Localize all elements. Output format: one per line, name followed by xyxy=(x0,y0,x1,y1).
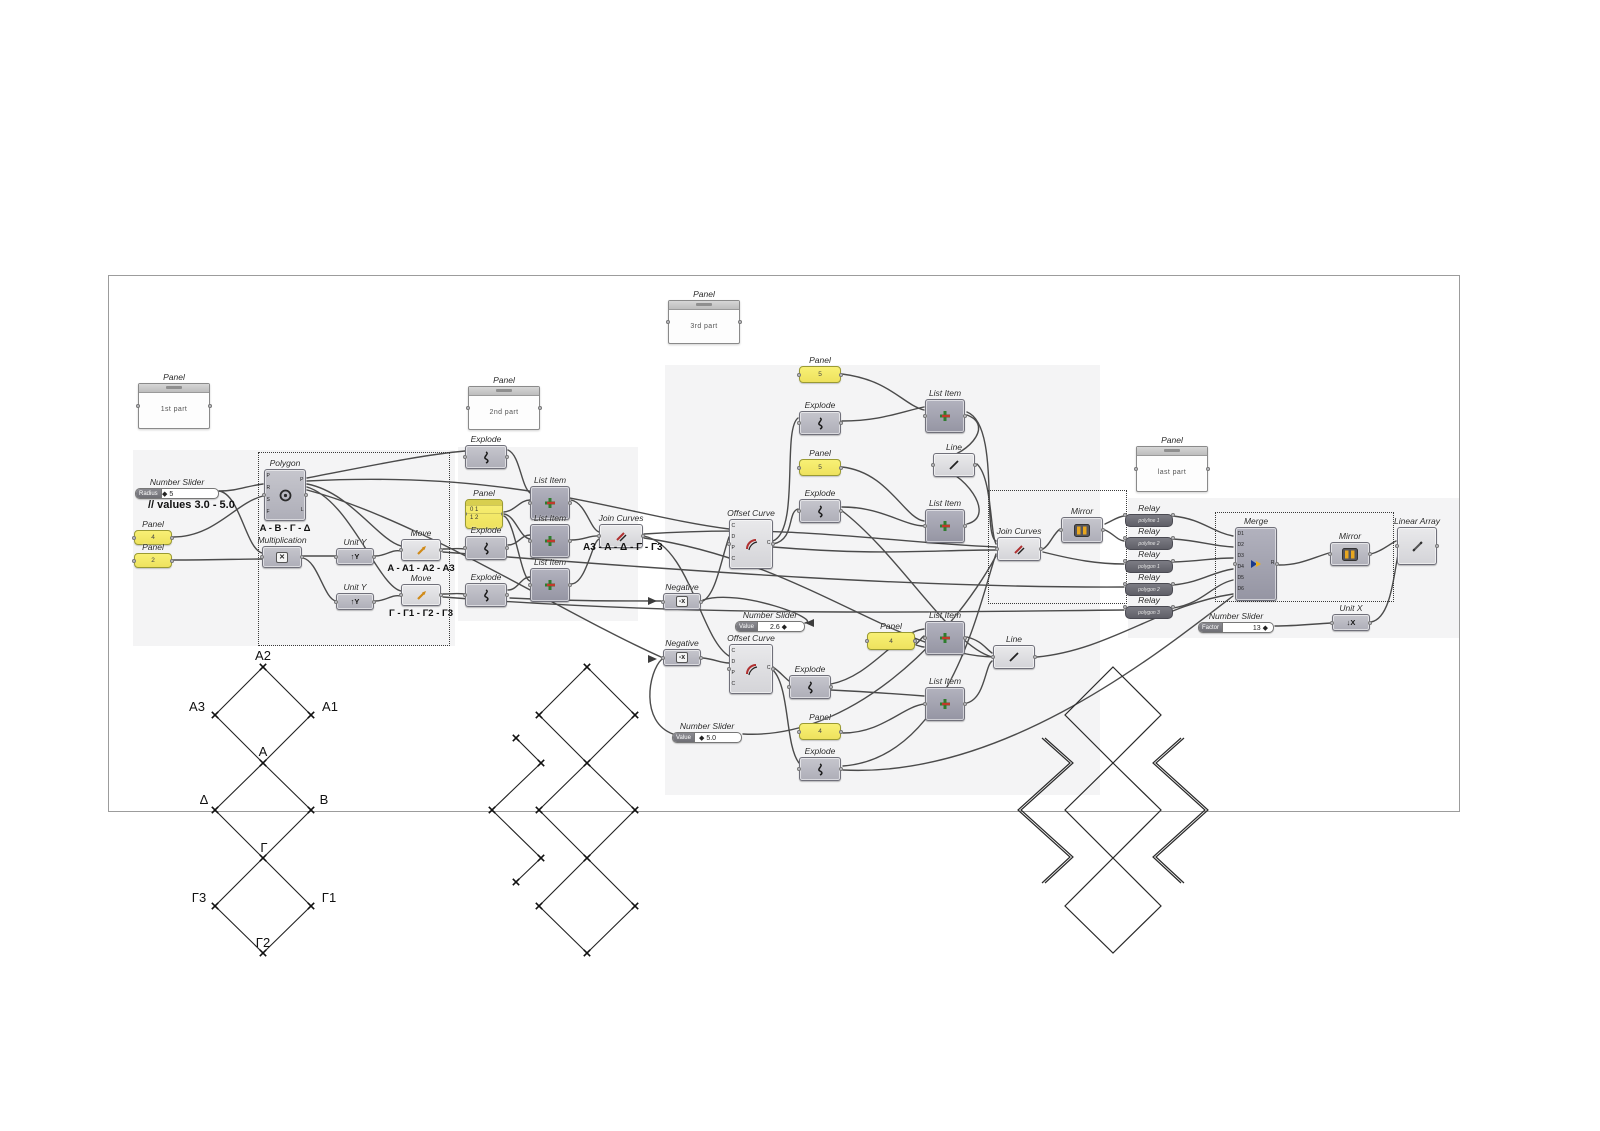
node-body xyxy=(925,509,965,543)
list-item-icon xyxy=(938,631,952,645)
number-slider-offset-top[interactable]: Number Slider Value 2.6 ◆ xyxy=(735,610,805,632)
node-label: Unit Y xyxy=(344,582,367,592)
slider-track: Value ◆ 5.0 xyxy=(672,732,742,743)
slider-grip[interactable]: Value xyxy=(736,622,758,631)
node-label: List Item xyxy=(534,557,566,567)
yellow-panel-body: 5 xyxy=(799,366,841,383)
merge-icon xyxy=(1249,557,1263,571)
join-annotation: A3 - A - Δ - Γ - Γ3 xyxy=(583,542,663,553)
unit-y-node-2[interactable]: Unit Y ↑Y xyxy=(337,582,373,610)
polygon-node[interactable]: Polygon P R S F P L A - B - Γ - Δ xyxy=(265,458,305,534)
explode-node-m2[interactable]: Explode xyxy=(800,488,840,523)
line-node-2[interactable]: Line xyxy=(994,634,1034,669)
join-curves-node-2[interactable]: Join Curves xyxy=(998,526,1040,561)
panel-label: Panel xyxy=(493,375,515,385)
node-label: Multiplication xyxy=(257,535,306,545)
list-item-node-3[interactable]: List Item xyxy=(531,557,569,602)
yellow-list-panel[interactable]: Panel 0 1 1 2 xyxy=(466,488,502,529)
linear-array-node[interactable]: Linear Array xyxy=(1398,516,1436,565)
offset-curve-node-1[interactable]: Offset Curve C D P C C xyxy=(730,508,772,569)
mirror-icon xyxy=(1342,548,1358,561)
number-slider-offset-bottom[interactable]: Number Slider Value ◆ 5.0 xyxy=(672,721,742,743)
node-body xyxy=(1397,527,1437,565)
panel-body: last part xyxy=(1136,446,1208,492)
explode-node-2[interactable]: Explode xyxy=(466,525,506,560)
node-body xyxy=(933,453,975,477)
node-label: Mirror xyxy=(1071,506,1093,516)
negative-node-1[interactable]: Negative -x xyxy=(664,582,700,610)
relay-body: polygon 3 xyxy=(1125,606,1173,619)
relay-node-5[interactable]: Relay polygon 3 xyxy=(1126,595,1172,619)
node-label: Explode xyxy=(471,525,502,535)
panel-label: Panel xyxy=(693,289,715,299)
node-body: P R S F P L xyxy=(264,469,306,521)
relay-node-1[interactable]: Relay polyline 1 xyxy=(1126,503,1172,527)
number-slider-radius[interactable]: Number Slider Radius ◆ 5 xyxy=(135,477,219,499)
line-node-1[interactable]: Line xyxy=(934,442,974,477)
node-label: Explode xyxy=(805,400,836,410)
node-label: Explode xyxy=(471,434,502,444)
node-label: List Item xyxy=(929,676,961,686)
slider-value: 2.6 ◆ xyxy=(770,623,787,631)
node-label: Explode xyxy=(805,488,836,498)
node-body xyxy=(401,584,441,606)
move-icon xyxy=(415,589,428,602)
slider-track: Factor 13 ◆ xyxy=(1198,622,1274,633)
panel-text: 3rd part xyxy=(669,310,739,343)
node-body: ↓X xyxy=(1332,614,1370,631)
panel-second[interactable]: Panel 2nd part xyxy=(468,375,540,430)
negative-icon: -x xyxy=(676,652,688,663)
node-body: ↑Y xyxy=(336,593,374,610)
explode-icon xyxy=(480,450,492,464)
unit-y-icon: ↑Y xyxy=(351,597,360,606)
port-in[interactable]: D4 xyxy=(1238,565,1244,570)
unit-y-node-1[interactable]: Unit Y ↑Y xyxy=(337,537,373,565)
node-body xyxy=(799,499,841,523)
node-body xyxy=(799,757,841,781)
node-label: List Item xyxy=(929,498,961,508)
node-body xyxy=(799,411,841,435)
node-label: Negative xyxy=(665,582,699,592)
yellow-panel-body: 2 xyxy=(134,553,172,568)
relay-node-2[interactable]: Relay polyline 2 xyxy=(1126,526,1172,550)
node-label: Linear Array xyxy=(1394,516,1440,526)
explode-icon xyxy=(814,416,826,430)
mirror-node-1[interactable]: Mirror xyxy=(1062,506,1102,543)
unit-x-node[interactable]: Unit X ↓X xyxy=(1333,603,1369,631)
node-body: C D P C C xyxy=(729,519,773,569)
offset-curve-icon xyxy=(744,537,759,552)
slider-grip[interactable]: Value xyxy=(673,733,695,742)
move-node-2[interactable]: Move Γ - Γ1 - Γ2 - Γ3 xyxy=(402,573,440,619)
node-label: List Item xyxy=(929,610,961,620)
panel-row: 1 2 xyxy=(466,513,502,521)
slider-label: Number Slider xyxy=(743,610,797,620)
panel-label: Panel xyxy=(809,712,831,722)
node-label: List Item xyxy=(534,475,566,485)
slider-track: Value 2.6 ◆ xyxy=(735,621,805,632)
yellow-panel-mid[interactable]: Panel 5 xyxy=(800,448,840,476)
polygon-icon xyxy=(278,488,293,503)
line-icon xyxy=(1008,651,1020,663)
explode-icon xyxy=(814,762,826,776)
panel-label: Panel xyxy=(1161,435,1183,445)
explode-node-m1[interactable]: Explode xyxy=(800,400,840,435)
node-label: Merge xyxy=(1244,516,1268,526)
yellow-panel-b[interactable]: Panel 2 xyxy=(135,542,171,568)
node-body: -x xyxy=(663,649,701,666)
port-in[interactable]: C xyxy=(732,557,736,562)
explode-node-m3[interactable]: Explode xyxy=(790,664,830,699)
explode-icon xyxy=(814,504,826,518)
node-body xyxy=(789,675,831,699)
node-label: Polygon xyxy=(270,458,301,468)
node-label: Join Curves xyxy=(997,526,1042,536)
node-label: Line xyxy=(1006,634,1022,644)
port-in[interactable]: D2 xyxy=(1238,543,1244,548)
node-body xyxy=(1061,517,1103,543)
node-label: Mirror xyxy=(1339,531,1361,541)
vertex-label-gamma: Γ xyxy=(260,840,267,855)
port-in[interactable]: D5 xyxy=(1238,576,1244,581)
unit-y-icon: ↑Y xyxy=(351,552,360,561)
list-item-node-m3[interactable]: List Item xyxy=(926,610,964,655)
slider-grip[interactable]: Factor xyxy=(1199,623,1223,632)
port-in[interactable]: P xyxy=(267,474,270,479)
port-out[interactable]: C xyxy=(767,666,771,671)
list-item-node-m2[interactable]: List Item xyxy=(926,498,964,543)
panel-label: Panel xyxy=(473,488,495,498)
panel-label: Panel xyxy=(142,519,164,529)
slider-label: Number Slider xyxy=(680,721,734,731)
negative-node-2[interactable]: Negative -x xyxy=(664,638,700,666)
number-slider-factor[interactable]: Number Slider Factor 13 ◆ xyxy=(1198,611,1274,633)
relay-node-4[interactable]: Relay polygon 2 xyxy=(1126,572,1172,596)
node-body xyxy=(530,568,570,602)
move-node-1[interactable]: Move A - A1 - A2 - A3 xyxy=(402,528,440,574)
polygon-annotation: A - B - Γ - Δ xyxy=(260,523,311,534)
list-item-icon xyxy=(938,519,952,533)
node-label: Relay xyxy=(1138,572,1160,582)
node-label: Unit X xyxy=(1339,603,1362,613)
port-out[interactable]: L xyxy=(301,508,304,513)
vertex-label-g1: Γ1 xyxy=(322,890,336,905)
node-label: Join Curves xyxy=(599,513,644,523)
panel-label: Panel xyxy=(809,448,831,458)
slider-track: Radius ◆ 5 xyxy=(135,488,219,499)
panel-first[interactable]: Panel 1st part xyxy=(138,372,210,429)
list-item-node-m1[interactable]: List Item xyxy=(926,388,964,433)
slider-value: 13 ◆ xyxy=(1253,624,1268,632)
grasshopper-canvas: { "shared": { "panel": "Panel", "number_… xyxy=(0,0,1600,1131)
node-label: Unit Y xyxy=(344,537,367,547)
port-out[interactable]: C xyxy=(767,541,771,546)
node-body xyxy=(925,687,965,721)
node-label: Relay xyxy=(1138,526,1160,536)
slider-grip[interactable]: Radius xyxy=(136,489,162,498)
port-in[interactable]: D6 xyxy=(1238,587,1244,592)
port-in[interactable]: D1 xyxy=(1238,532,1244,537)
panel-row: 0 1 xyxy=(466,505,502,513)
move-icon xyxy=(415,544,428,557)
node-label: Move xyxy=(411,528,432,538)
offset-curve-node-2[interactable]: Offset Curve C D P C C xyxy=(730,633,772,694)
node-label: Relay xyxy=(1138,549,1160,559)
node-body xyxy=(401,539,441,561)
mirror-icon xyxy=(1074,524,1090,537)
linear-array-icon xyxy=(1411,540,1424,553)
unit-x-icon: ↓X xyxy=(1347,618,1356,627)
node-body: D1 D2 D3 D4 D5 D6 R xyxy=(1235,527,1277,601)
panel-third[interactable]: Panel 3rd part xyxy=(668,289,740,344)
node-body xyxy=(465,583,507,607)
port-out[interactable]: P xyxy=(300,478,303,483)
multiplication-node[interactable]: Multiplication ✕ xyxy=(263,535,301,568)
move2-annotation: Γ - Γ1 - Γ2 - Γ3 xyxy=(389,608,453,619)
node-body: -x xyxy=(663,593,701,610)
vertex-label-g3: Γ3 xyxy=(192,890,206,905)
node-body xyxy=(925,399,965,433)
port-in[interactable]: C xyxy=(732,649,736,654)
list-item-node-2[interactable]: List Item xyxy=(531,513,569,558)
merge-node[interactable]: Merge D1 D2 D3 D4 D5 D6 R xyxy=(1236,516,1276,601)
port-in[interactable]: C xyxy=(732,682,736,687)
explode-icon xyxy=(480,588,492,602)
yellow-panel-top[interactable]: Panel 5 xyxy=(800,355,840,383)
line-icon xyxy=(948,459,960,471)
vertex-label-g2: Γ2 xyxy=(256,935,270,950)
panel-text: 1st part xyxy=(139,393,209,426)
explode-node-m4[interactable]: Explode xyxy=(800,746,840,781)
port-in[interactable]: R xyxy=(267,486,271,491)
node-body xyxy=(465,445,507,469)
yellow-panel-body: 4 xyxy=(799,723,841,740)
join-curves-icon xyxy=(1012,542,1026,556)
node-label: Offset Curve xyxy=(727,508,775,518)
yellow-panel-body: 5 xyxy=(799,459,841,476)
node-body xyxy=(997,537,1041,561)
panel-last[interactable]: Panel last part xyxy=(1136,435,1208,492)
node-label: List Item xyxy=(929,388,961,398)
yellow-panel-low[interactable]: Panel 4 xyxy=(868,621,914,650)
explode-node-3[interactable]: Explode xyxy=(466,572,506,607)
node-label: Relay xyxy=(1138,595,1160,605)
port-in[interactable]: F xyxy=(267,510,270,515)
node-label: Explode xyxy=(805,746,836,756)
panel-label: Panel xyxy=(880,621,902,631)
port-out[interactable]: R xyxy=(1271,561,1275,566)
node-body xyxy=(465,536,507,560)
node-label: Line xyxy=(946,442,962,452)
slider-label: Number Slider xyxy=(150,477,204,487)
panel-text: last part xyxy=(1137,456,1207,489)
node-body xyxy=(925,621,965,655)
explode-icon xyxy=(480,541,492,555)
slider-value: ◆ 5.0 xyxy=(699,734,716,742)
panel-label: Panel xyxy=(809,355,831,365)
port-in[interactable]: P xyxy=(732,546,735,551)
port-in[interactable]: D xyxy=(732,660,736,665)
node-label: Relay xyxy=(1138,503,1160,513)
negative-icon: -x xyxy=(676,596,688,607)
panel-label: Panel xyxy=(163,372,185,382)
port-in[interactable]: D xyxy=(732,535,736,540)
panel-label: Panel xyxy=(142,542,164,552)
relay-node-3[interactable]: Relay polygon 1 xyxy=(1126,549,1172,573)
values-comment: // values 3.0 - 5.0 xyxy=(148,499,235,511)
node-body xyxy=(530,524,570,558)
explode-node-1[interactable]: Explode xyxy=(466,434,506,469)
node-label: Offset Curve xyxy=(727,633,775,643)
yellow-panel-bottom[interactable]: Panel 4 xyxy=(800,712,840,740)
list-item-icon xyxy=(938,409,952,423)
offset-curve-icon xyxy=(744,662,759,677)
node-body: ✕ xyxy=(262,546,302,568)
node-body: C D P C C xyxy=(729,644,773,694)
node-body xyxy=(993,645,1035,669)
port-in[interactable]: D3 xyxy=(1238,554,1244,559)
yellow-panel-body: 4 xyxy=(867,632,915,650)
node-body xyxy=(1330,542,1370,566)
panel-body: 2nd part xyxy=(468,386,540,430)
list-item-icon xyxy=(543,534,557,548)
explode-icon xyxy=(804,680,816,694)
node-body: ↑Y xyxy=(336,548,374,565)
panel-body: 3rd part xyxy=(668,300,740,344)
node-label: Explode xyxy=(471,572,502,582)
slider-value: ◆ 5 xyxy=(162,490,173,498)
list-item-icon xyxy=(543,496,557,510)
slider-label: Number Slider xyxy=(1209,611,1263,621)
multiplication-icon: ✕ xyxy=(276,552,288,563)
list-item-node-m4[interactable]: List Item xyxy=(926,676,964,721)
mirror-node-2[interactable]: Mirror xyxy=(1331,531,1369,566)
panel-body: 1st part xyxy=(138,383,210,429)
panel-text: 2nd part xyxy=(469,396,539,429)
list-item-icon xyxy=(938,697,952,711)
node-label: List Item xyxy=(534,513,566,523)
port-in[interactable]: C xyxy=(732,524,736,529)
port-in[interactable]: S xyxy=(267,498,270,503)
node-label: Move xyxy=(411,573,432,583)
list-item-icon xyxy=(543,578,557,592)
node-label: Negative xyxy=(665,638,699,648)
node-label: Explode xyxy=(795,664,826,674)
port-in[interactable]: P xyxy=(732,671,735,676)
join-curves-icon xyxy=(614,529,628,543)
